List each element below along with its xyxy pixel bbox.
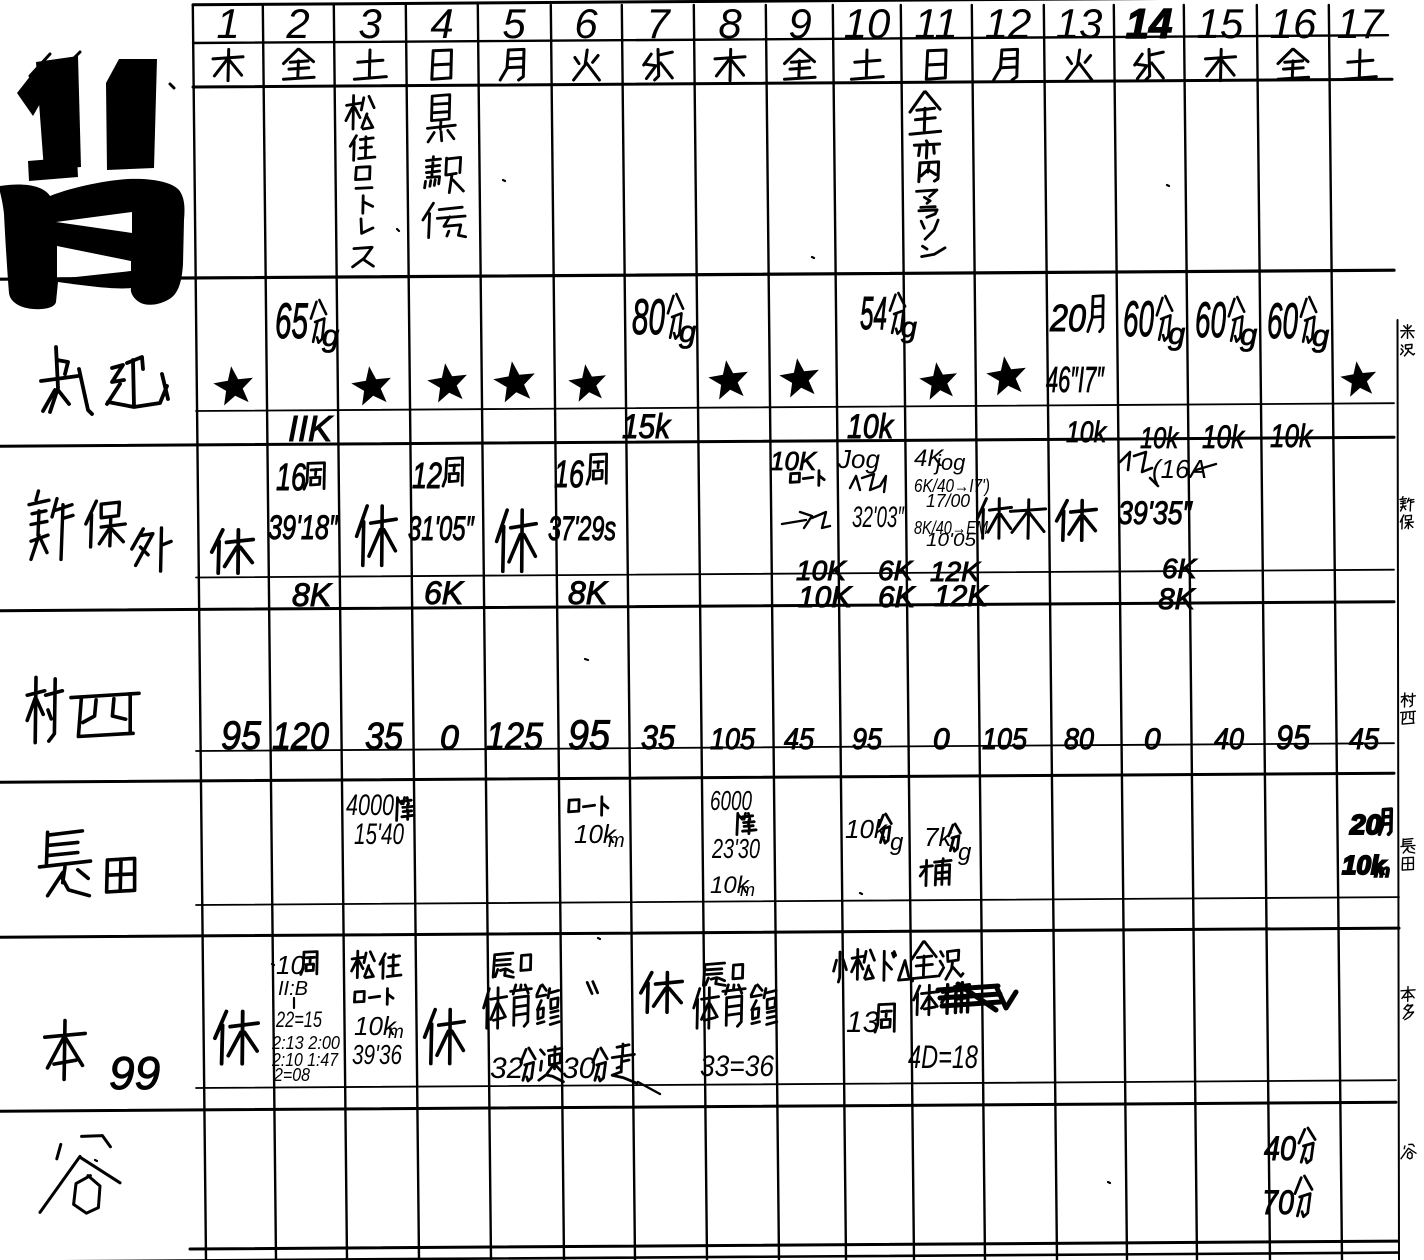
svg-text:95: 95 [568, 711, 611, 758]
svg-text:m: m [1374, 861, 1390, 881]
svg-text:g: g [1168, 316, 1185, 351]
svg-text:37'29s: 37'29s [548, 510, 616, 548]
svg-text:9: 9 [788, 0, 811, 47]
svg-text:12K: 12K [934, 580, 989, 613]
svg-text:45: 45 [784, 723, 814, 756]
svg-text:17/00: 17/00 [926, 491, 970, 511]
svg-text:6K: 6K [1162, 553, 1198, 584]
svg-text:15k: 15k [622, 408, 672, 446]
svg-text:2=08: 2=08 [273, 1065, 310, 1085]
svg-text:15: 15 [1197, 0, 1244, 47]
svg-text:0: 0 [933, 723, 950, 756]
svg-text:3: 3 [358, 0, 381, 47]
svg-text:jog: jog [933, 450, 966, 475]
svg-text:95: 95 [852, 723, 882, 756]
svg-text:4: 4 [430, 0, 453, 47]
svg-text:8K: 8K [568, 575, 609, 611]
svg-text:60: 60 [1123, 291, 1154, 347]
svg-text:39'36: 39'36 [352, 1039, 402, 1070]
svg-text:14: 14 [1126, 0, 1173, 47]
svg-text:30: 30 [562, 1052, 596, 1085]
svg-text:1: 1 [216, 0, 239, 47]
svg-text:6: 6 [574, 0, 598, 47]
svg-text:7: 7 [646, 0, 671, 47]
svg-text:10'05: 10'05 [926, 530, 977, 550]
svg-text:10k: 10k [1140, 422, 1180, 455]
svg-text:g: g [890, 829, 904, 856]
svg-text:6K: 6K [424, 575, 465, 611]
svg-text:125: 125 [486, 716, 544, 758]
svg-text:g: g [1240, 317, 1257, 352]
svg-text:10k: 10k [1066, 416, 1108, 449]
svg-text:13: 13 [846, 1006, 880, 1039]
svg-text:g: g [1312, 318, 1329, 353]
svg-text:80: 80 [632, 289, 665, 345]
svg-text:35: 35 [365, 716, 404, 758]
svg-text:46″I7″: 46″I7″ [1046, 359, 1105, 400]
svg-text:g: g [679, 314, 696, 349]
svg-text:65: 65 [275, 293, 308, 349]
svg-text:23'30: 23'30 [711, 833, 760, 864]
svg-text:16: 16 [276, 457, 307, 499]
svg-text:Jog: Jog [837, 444, 880, 474]
svg-text:m: m [608, 830, 625, 852]
svg-text:54: 54 [860, 287, 887, 339]
svg-text:70: 70 [1262, 1184, 1294, 1222]
svg-text:32: 32 [490, 1052, 524, 1085]
svg-text:17: 17 [1337, 0, 1385, 47]
svg-text:8K: 8K [292, 577, 333, 613]
svg-text:10K: 10K [798, 581, 853, 614]
svg-text:2: 2 [285, 0, 309, 47]
svg-text:g: g [901, 312, 917, 344]
svg-text:40: 40 [1264, 1130, 1296, 1168]
svg-text:10K: 10K [770, 446, 818, 476]
svg-text:45: 45 [1349, 723, 1379, 756]
svg-text:16: 16 [554, 454, 585, 496]
svg-text:II:B: II:B [278, 978, 308, 1000]
svg-text:10: 10 [844, 0, 891, 47]
svg-text:20: 20 [1349, 809, 1382, 840]
svg-text:11: 11 [914, 0, 958, 47]
svg-text:IIK: IIK [288, 408, 334, 449]
svg-text:95: 95 [1276, 719, 1310, 757]
svg-text:39'35″: 39'35″ [1118, 495, 1193, 531]
svg-text:4D=18: 4D=18 [908, 1039, 978, 1075]
svg-text:80: 80 [1064, 723, 1094, 756]
svg-text:8: 8 [718, 0, 742, 47]
svg-text:g: g [958, 839, 972, 866]
svg-text:60: 60 [1267, 293, 1298, 349]
svg-text:10k: 10k [1202, 419, 1246, 455]
svg-text:60: 60 [1195, 292, 1226, 348]
svg-text:105: 105 [982, 723, 1027, 756]
svg-text:g: g [322, 318, 339, 353]
svg-text:6K: 6K [878, 581, 917, 614]
svg-text:8K: 8K [1158, 583, 1197, 616]
svg-text:105: 105 [710, 723, 755, 756]
svg-text:99: 99 [109, 1047, 160, 1099]
svg-text:6000: 6000 [710, 785, 752, 816]
svg-text:40: 40 [1214, 723, 1244, 756]
svg-text:31'05″: 31'05″ [408, 510, 475, 548]
svg-text:15'40: 15'40 [354, 818, 404, 851]
svg-text:12: 12 [412, 455, 442, 496]
svg-text:0: 0 [1144, 723, 1161, 756]
svg-text:33=36: 33=36 [700, 1050, 774, 1083]
svg-text:20: 20 [1049, 298, 1086, 340]
svg-text:120: 120 [272, 716, 329, 758]
svg-text:12: 12 [985, 0, 1032, 47]
svg-text:m: m [740, 880, 755, 900]
svg-text:5: 5 [502, 0, 526, 47]
svg-text:39'18″: 39'18″ [268, 509, 339, 547]
svg-text:95: 95 [221, 714, 262, 758]
svg-text:0: 0 [440, 719, 459, 757]
svg-text:10k: 10k [1270, 418, 1314, 454]
svg-text:22=15: 22=15 [275, 1007, 322, 1032]
svg-text:16: 16 [1270, 0, 1317, 47]
svg-text:13: 13 [1056, 0, 1103, 47]
svg-text:35: 35 [641, 719, 675, 757]
svg-text:32'03″: 32'03″ [852, 501, 905, 534]
svg-text:10k: 10k [847, 408, 895, 446]
